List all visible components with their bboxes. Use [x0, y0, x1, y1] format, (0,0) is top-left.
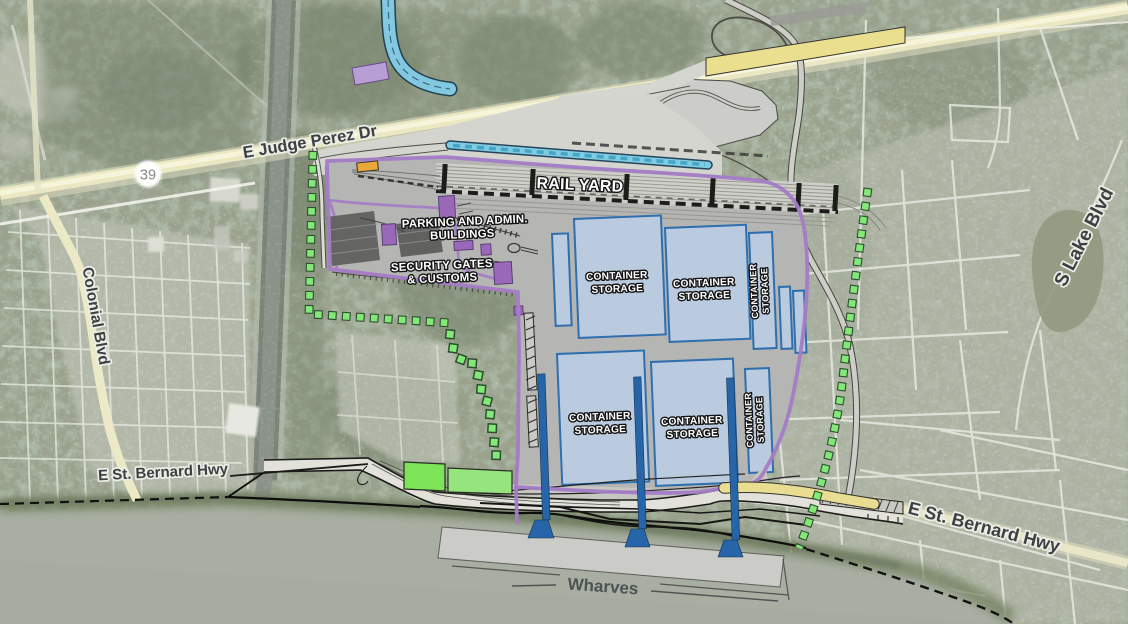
svg-text:STORAGE: STORAGE	[754, 397, 766, 443]
svg-text:39: 39	[140, 168, 156, 184]
svg-text:STORAGE: STORAGE	[574, 424, 626, 437]
svg-text:STORAGE: STORAGE	[666, 428, 718, 441]
svg-text:STORAGE: STORAGE	[678, 290, 730, 303]
svg-text:STORAGE: STORAGE	[759, 268, 771, 314]
svg-text:STORAGE: STORAGE	[591, 283, 643, 296]
